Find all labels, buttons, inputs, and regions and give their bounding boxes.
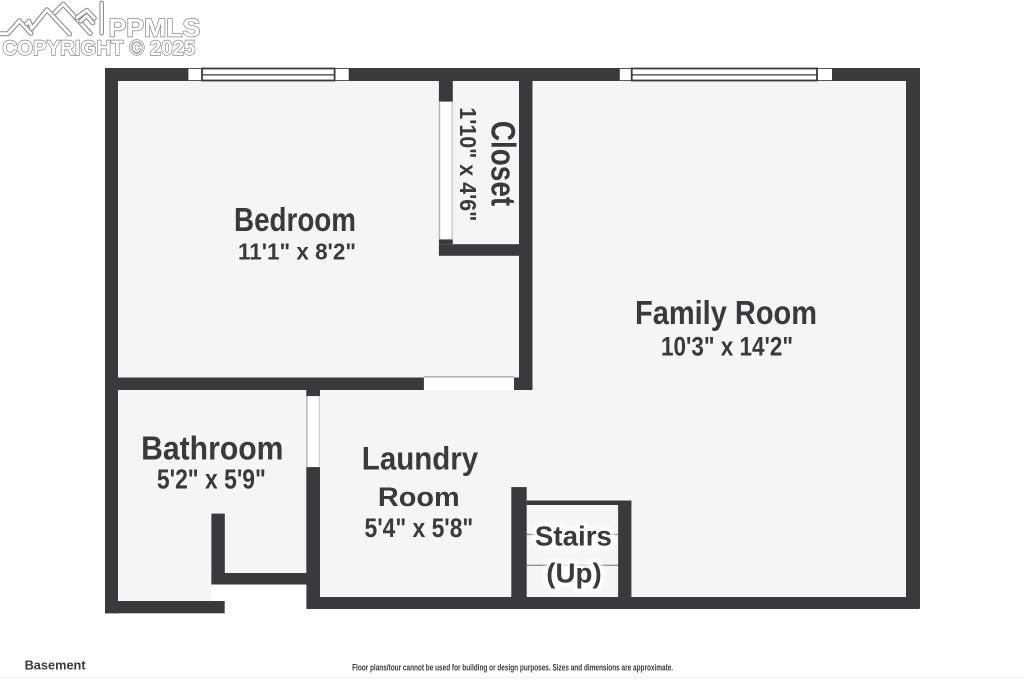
svg-text:Floor plans/tour cannot be use: Floor plans/tour cannot be used for buil…	[352, 663, 673, 673]
svg-text:Laundry: Laundry	[362, 441, 479, 477]
svg-text:5'4" x 5'8": 5'4" x 5'8"	[365, 513, 474, 543]
svg-text:(Up): (Up)	[546, 558, 602, 589]
svg-text:Bathroom: Bathroom	[141, 430, 283, 467]
svg-text:1'10" x 4'6": 1'10" x 4'6"	[455, 107, 481, 221]
svg-text:11'1" x 8'2": 11'1" x 8'2"	[238, 239, 356, 265]
svg-text:Bedroom: Bedroom	[234, 201, 356, 238]
svg-text:5'2" x 5'9": 5'2" x 5'9"	[157, 464, 266, 495]
svg-text:Basement: Basement	[25, 657, 87, 672]
svg-text:Family Room: Family Room	[635, 294, 817, 331]
svg-text:Stairs: Stairs	[535, 521, 612, 552]
svg-text:10'3" x 14'2": 10'3" x 14'2"	[661, 332, 793, 362]
svg-text:COPYRIGHT © 2025: COPYRIGHT © 2025	[2, 37, 195, 60]
svg-text:Closet: Closet	[483, 121, 521, 206]
svg-text:Room: Room	[378, 482, 460, 512]
